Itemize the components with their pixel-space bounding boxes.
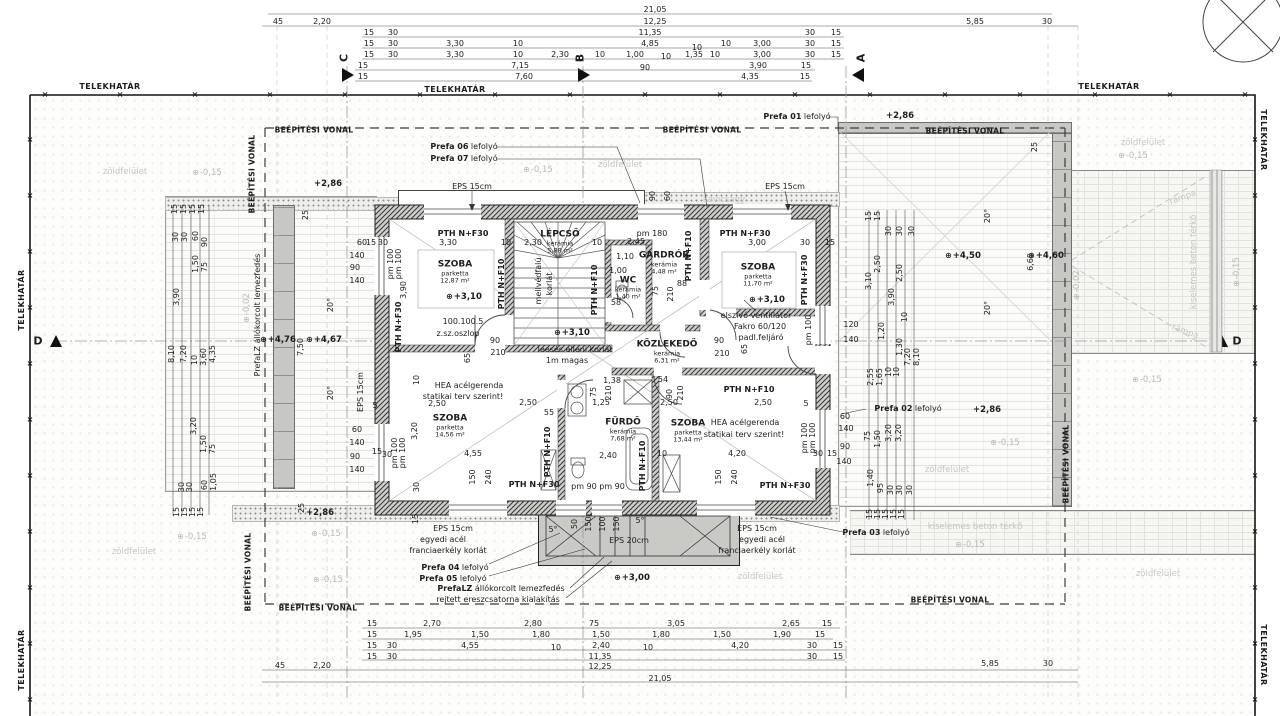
dim-label: 15: [372, 448, 382, 456]
level-mark: ⊕-0,15: [1118, 152, 1148, 161]
dim-label: 90: [201, 237, 209, 247]
dim-label: 30: [186, 482, 194, 492]
level-symbol-icon: ⊕: [749, 295, 756, 304]
dim-label: 3,00: [753, 40, 771, 48]
annotation: Prefa 02 lefolyó: [874, 405, 941, 413]
dim-label: 30: [1042, 18, 1052, 26]
dim-label: 3,90: [400, 281, 408, 299]
boundary-label: TELEKHATÁR: [18, 629, 26, 690]
level-mark: ⊕-0,15: [1233, 257, 1242, 287]
dim-label: 1,20: [878, 322, 886, 340]
dim-label: 10: [657, 450, 667, 458]
dim-label: 3,30: [446, 51, 464, 59]
level-symbol-icon: ⊕: [554, 328, 561, 337]
boundary-mark: ×: [1252, 304, 1259, 312]
section-letter: D: [1232, 336, 1241, 347]
level-mark: +2,86: [314, 180, 342, 189]
dim-label: 20°: [327, 298, 335, 312]
dim-label: 15: [366, 239, 376, 247]
boundary-mark: ×: [27, 360, 34, 368]
dim-label: 2,70: [423, 620, 441, 628]
level-mark: ⊕-0,15: [313, 576, 343, 585]
level-mark: +2,86: [886, 112, 914, 121]
dim-label: 3,90: [888, 288, 896, 306]
dim-label: 75: [590, 387, 598, 397]
dim-label: 30: [1043, 660, 1053, 668]
dim-label: 30: [413, 482, 421, 492]
boundary-mark: ×: [117, 91, 124, 99]
dim-label: 15: [827, 450, 837, 458]
labels-layer: TELEKHATÁRTELEKHATÁRTELEKHATÁRTELEKHATÁR…: [0, 0, 1280, 716]
dim-label: 10: [592, 239, 602, 247]
annotation: egyedi acél: [739, 536, 785, 544]
dim-label: 75: [652, 286, 660, 296]
annotation: egyedi acél: [420, 536, 466, 544]
dim-label: 11,35: [589, 653, 612, 661]
dim-label: 10: [191, 355, 199, 365]
dim-label: 30: [181, 232, 189, 242]
level-mark: ⊕+4,60: [1028, 252, 1064, 261]
dim-label: 30: [906, 485, 914, 495]
dim-label: 2,50: [519, 399, 537, 407]
dim-label: pm 90 pm 90: [571, 483, 625, 491]
level-mark: ⊕-0,15: [1132, 376, 1162, 385]
dim-label: 7,20: [180, 345, 188, 363]
dim-label: 15: [898, 509, 906, 519]
dim-label: 2,30: [524, 239, 542, 247]
dim-label: 4,35: [741, 73, 759, 81]
dim-label: 5°: [635, 517, 644, 525]
dim-label: 2,50: [896, 264, 904, 282]
boundary-mark: ×: [1252, 696, 1259, 704]
dim-label: 10: [513, 40, 523, 48]
dim-label: 15: [833, 653, 843, 661]
room-label: SZOBAparketta13,44 m²: [671, 420, 705, 443]
dim-label: 60: [201, 480, 209, 490]
level-symbol-icon: ⊕: [1118, 151, 1125, 160]
dim-label: 2,50: [874, 255, 882, 273]
dim-label: 12,25: [644, 18, 667, 26]
dim-label: 15: [367, 631, 377, 639]
dim-label: 2,30: [551, 51, 569, 59]
annotation: Prefa 05 lefolyó: [419, 575, 486, 583]
dim-label: 1,50: [200, 435, 208, 453]
wall-type-label: PTH N+F30: [760, 482, 811, 490]
dim-label: 1,05: [210, 473, 218, 491]
level-mark: ⊕-0,15: [311, 530, 341, 539]
boundary-label: TELEKHATÁR: [79, 83, 140, 91]
dim-label: 10: [501, 239, 511, 247]
area-label: zöldfelület: [1136, 570, 1180, 579]
dim-label: 65: [741, 344, 749, 354]
dim-label: 30: [178, 482, 186, 492]
boundary-mark: ×: [1017, 91, 1024, 99]
level-mark: ⊕-0,15: [955, 541, 985, 550]
dim-label: 30: [885, 226, 893, 236]
annotation: EPS 15cm: [452, 183, 492, 191]
floor-plan-canvas: TELEKHATÁRTELEKHATÁRTELEKHATÁRTELEKHATÁR…: [0, 0, 1280, 716]
room-label: SZOBAparketta11,70 m²: [741, 264, 775, 287]
dim-label: 1,35: [685, 51, 703, 59]
annotation: Prefa 01 lefolyó: [763, 113, 830, 121]
annotation: leesés elleni korlát: [538, 346, 613, 354]
boundary-mark: ×: [27, 528, 34, 536]
dim-label: 1,50: [592, 631, 610, 639]
section-letter: C: [339, 54, 350, 62]
area-label: rámpa: [1169, 189, 1198, 206]
dim-label: 90: [666, 389, 674, 399]
dim-label: 45: [273, 18, 283, 26]
dim-label: 15: [358, 62, 368, 70]
annotation: franciaerkély korlát: [409, 547, 486, 555]
dim-label: 10: [595, 51, 605, 59]
level-symbol-icon: ⊕: [177, 532, 184, 541]
dim-label: 15: [874, 211, 882, 221]
dim-label: 75: [201, 262, 209, 272]
dim-label: 30: [887, 485, 895, 495]
boundary-label: TELEKHATÁR: [1078, 83, 1139, 91]
dim-label: 15: [358, 73, 368, 81]
dim-label: 3,20: [885, 424, 893, 442]
dim-label: 140: [349, 439, 364, 447]
dim-label: 20°: [327, 386, 335, 400]
area-label: zöldfelület: [103, 168, 147, 177]
level-symbol-icon: ⊕: [955, 540, 962, 549]
area-label: kiselemes beton térkő: [928, 523, 1023, 532]
dim-label: 2,40: [599, 452, 617, 460]
dim-label: 90: [350, 264, 360, 272]
boundary-mark: ×: [1242, 91, 1249, 99]
dim-label: 75: [209, 444, 217, 454]
dim-label: 21,05: [644, 6, 667, 14]
annotation: HEA acélgerenda: [435, 382, 504, 390]
level-symbol-icon: ⊕: [1072, 293, 1081, 300]
boundary-mark: ×: [792, 91, 799, 99]
dim-label: 15: [171, 204, 179, 214]
dim-label: 240: [731, 469, 739, 484]
dim-label: 90: [490, 337, 500, 345]
wall-type-label: PTH N+F30: [801, 255, 809, 306]
boundary-mark: ×: [1252, 136, 1259, 144]
dim-label: 5°: [548, 526, 557, 534]
dim-label: 15: [822, 620, 832, 628]
dim-label: 150: [715, 469, 723, 484]
dim-label: 2,80: [524, 620, 542, 628]
annotation: statikai terv szerint!: [704, 431, 785, 439]
section-letter: A: [856, 54, 867, 63]
boundary-mark: ×: [1252, 360, 1259, 368]
dim-label: 15: [367, 642, 377, 650]
dim-label: 60: [840, 413, 850, 421]
annotation: EPS 15cm: [433, 525, 473, 533]
dim-label: 3,00: [753, 51, 771, 59]
building-line-label: BEÉPÍTÉSI VONAL: [911, 596, 990, 604]
dim-label: 30: [805, 51, 815, 59]
dim-label: 3,05: [667, 620, 685, 628]
dim-label: 120: [843, 321, 858, 329]
dim-label: 210: [714, 350, 729, 358]
area-label: kiselemes beton térkő: [1190, 215, 1199, 310]
building-line-label: BEÉPÍTÉSI VONAL: [1062, 425, 1070, 504]
dim-label: 15: [197, 507, 205, 517]
level-symbol-icon: ⊕: [306, 335, 313, 344]
annotation: Fakro 60/120: [734, 323, 786, 331]
area-label: zöldfelület: [598, 161, 642, 170]
boundary-mark: ×: [1252, 192, 1259, 200]
dim-label: 140: [349, 277, 364, 285]
dim-label: 3,10: [865, 272, 873, 290]
dim-label: 60: [352, 426, 362, 434]
dim-label: 3,20: [895, 424, 903, 442]
dim-label: 58: [611, 299, 621, 307]
dim-label: 7,60: [515, 73, 533, 81]
annotation: 1m magas: [546, 357, 588, 365]
boundary-label: TELEKHATÁR: [1259, 109, 1267, 170]
dim-label: 10: [413, 375, 421, 385]
section-letter: D: [33, 336, 42, 347]
annotation: PrefaLZ állókorcolt lemezfedés: [254, 254, 262, 377]
level-mark: ⊕-0,02: [243, 293, 252, 323]
dim-label: 15: [367, 620, 377, 628]
boundary-mark: ×: [1252, 584, 1259, 592]
dim-label: 10: [893, 367, 901, 377]
dim-label: 11,35: [639, 29, 662, 37]
level-mark: ⊕-0,15: [192, 169, 222, 178]
dim-label: 1,95: [404, 631, 422, 639]
dim-label: 15: [815, 631, 825, 639]
level-mark: ⊕+3,10: [554, 329, 590, 338]
boundary-label: TELEKHATÁR: [1259, 624, 1267, 685]
boundary-mark: ×: [27, 416, 34, 424]
boundary-mark: ×: [27, 696, 34, 704]
annotation: statikai terv szerint!: [423, 393, 504, 401]
boundary-mark: ×: [27, 304, 34, 312]
annotation: Prefa 03 lefolyó: [842, 529, 909, 537]
room-label: LÉPCSŐkerámia5,88 m²: [540, 231, 579, 254]
dim-label: pm 100: [805, 315, 813, 346]
level-mark: ⊕-0,15: [990, 439, 1020, 448]
wall-type-label: PTH N+F10: [639, 441, 647, 492]
dim-label: 30: [807, 642, 817, 650]
dim-label: 8,10: [168, 345, 176, 363]
dim-label: pm 100: [809, 423, 817, 454]
boundary-mark: ×: [1252, 248, 1259, 256]
dim-label: 5: [372, 402, 377, 410]
annotation: Prefa 07 lefolyó: [430, 155, 497, 163]
level-symbol-icon: ⊕: [945, 251, 952, 260]
dim-label: 15: [367, 653, 377, 661]
dim-label: 1,80: [652, 631, 670, 639]
dim-label: 30: [896, 485, 904, 495]
boundary-mark: ×: [27, 248, 34, 256]
dim-label: 30: [388, 29, 398, 37]
dim-label: 90: [350, 453, 360, 461]
dim-label: 12,25: [589, 663, 612, 671]
dim-label: 25: [302, 210, 310, 220]
dim-label: 90: [840, 443, 850, 451]
dim-label: 90: [640, 64, 650, 72]
level-symbol-icon: ⊕: [311, 529, 318, 538]
level-symbol-icon: ⊕: [242, 316, 251, 323]
dim-label: 15: [833, 642, 843, 650]
boundary-mark: ×: [27, 192, 34, 200]
dim-label: 21,05: [649, 675, 672, 683]
dim-label: 15: [801, 62, 811, 70]
dim-label: 3,20: [190, 417, 198, 435]
dim-label: 15: [831, 29, 841, 37]
room-label: GARDRÓBkerámia4,48 m²: [639, 252, 689, 275]
level-symbol-icon: ⊕: [990, 438, 997, 447]
dim-label: 1,40: [867, 469, 875, 487]
dim-label: 2,50: [754, 399, 772, 407]
dim-label: 1,90: [773, 631, 791, 639]
area-label: zöldfelület: [1121, 139, 1165, 148]
dim-label: 45: [275, 662, 285, 670]
boundary-mark: ×: [867, 91, 874, 99]
dim-label: 15: [364, 29, 374, 37]
boundary-mark: ×: [1252, 472, 1259, 480]
level-mark: +2,86: [973, 406, 1001, 415]
dim-label: 140: [349, 466, 364, 474]
boundary-mark: ×: [1252, 528, 1259, 536]
dim-label: 1,50: [713, 631, 731, 639]
dim-label: 50: [571, 519, 579, 529]
dim-label: 15: [412, 514, 420, 524]
level-mark: ⊕+3,00: [614, 574, 650, 583]
dim-label: 90: [714, 337, 724, 345]
area-label: zöldfelület: [112, 548, 156, 557]
dim-label: 240: [485, 469, 493, 484]
level-mark: ⊕+4,50: [945, 252, 981, 261]
dim-label: 30: [805, 40, 815, 48]
dim-label: 210: [667, 286, 675, 301]
dim-label: 5: [803, 400, 808, 408]
dim-label: 1,50: [874, 430, 882, 448]
boundary-label: TELEKHATÁR: [18, 269, 26, 330]
annotation: PrefaLZ állókorcolt lemezfedés: [437, 585, 564, 593]
boundary-mark: ×: [942, 91, 949, 99]
level-symbol-icon: ⊕: [446, 292, 453, 301]
dim-label: 54: [658, 376, 668, 384]
annotation: EPS 20cm: [609, 537, 649, 545]
boundary-mark: ×: [417, 91, 424, 99]
dim-label: 15: [825, 239, 835, 247]
dim-label: 3,30: [439, 239, 457, 247]
dim-label: 210: [605, 385, 613, 400]
dim-label: 1,50: [192, 255, 200, 273]
dim-label: 210: [677, 385, 685, 400]
dim-label: 30: [172, 232, 180, 242]
annotation: rejtett ereszcsatorna kialakítás: [436, 596, 560, 604]
dim-label: 60: [192, 231, 200, 241]
dim-label: 4,55: [464, 450, 482, 458]
room-label: KÖZLEKEDŐkerámia6,31 m²: [637, 341, 698, 364]
dim-label: 140: [349, 252, 364, 260]
wall-type-label: PTH N+F10: [544, 427, 552, 478]
dim-label: 100: [599, 516, 607, 531]
dim-label: 30: [388, 40, 398, 48]
dim-label: 210: [490, 349, 505, 357]
dim-label: 2,55: [867, 368, 875, 386]
dim-label: 10: [661, 53, 671, 61]
annotation: EPS 15cm: [765, 183, 805, 191]
wall-type-label: PTH N+F30: [509, 481, 560, 489]
building-line-label: BEÉPÍTÉSI VONAL: [244, 533, 252, 612]
dim-label: 20°: [984, 301, 992, 315]
dim-label: 20°: [984, 209, 992, 223]
dim-label: 7,20: [904, 348, 912, 366]
level-mark: ⊕-0,02: [1073, 270, 1082, 300]
dim-label: 4,85: [641, 40, 659, 48]
level-symbol-icon: ⊕: [614, 573, 621, 582]
wall-type-label: PTH N+F10: [724, 386, 775, 394]
dim-label: 30: [800, 239, 810, 247]
boundary-mark: ×: [192, 91, 199, 99]
dim-label: 2,50: [428, 400, 446, 408]
dim-label: 15: [800, 73, 810, 81]
dim-label: 15: [189, 204, 197, 214]
boundary-mark: ×: [27, 472, 34, 480]
dim-label: 10: [710, 51, 720, 59]
dim-label: 15: [831, 51, 841, 59]
level-symbol-icon: ⊕: [1232, 280, 1241, 287]
boundary-mark: ×: [717, 91, 724, 99]
dim-label: 2,20: [313, 662, 331, 670]
dim-label: 150: [585, 516, 593, 531]
dim-label: 1,38: [603, 377, 621, 385]
level-mark: ⊕+4,76: [260, 336, 296, 345]
area-label: rámpa: [1171, 323, 1200, 340]
dim-label: 25: [298, 503, 306, 513]
dim-label: 15: [865, 211, 873, 221]
dim-label: 90: [649, 191, 657, 201]
dim-label: pm 100: [399, 438, 407, 469]
level-mark: +2,86: [306, 509, 334, 518]
dim-label: 3,60: [200, 348, 208, 366]
boundary-mark: ×: [567, 91, 574, 99]
dim-label: 95: [877, 483, 885, 493]
dim-label: 150: [469, 469, 477, 484]
level-mark: ⊕-0,15: [177, 533, 207, 542]
dim-label: 30: [896, 226, 904, 236]
annotation: padl.feljáró: [739, 334, 784, 342]
level-mark: ⊕+3,10: [749, 296, 785, 305]
boundary-mark: ×: [267, 91, 274, 99]
annotation: EPS 15cm: [357, 372, 365, 412]
annotation: elszívó ventillátor: [721, 312, 792, 320]
dim-label: 1,10: [616, 253, 634, 261]
level-mark: ⊕-0,15: [523, 166, 553, 175]
wall-type-label: PTH N+F30: [438, 230, 489, 238]
dim-label: 10: [643, 644, 653, 652]
level-symbol-icon: ⊕: [313, 575, 320, 584]
building-line-label: BEÉPÍTÉSI VONAL: [663, 126, 742, 134]
boundary-mark: ×: [42, 91, 49, 99]
dim-label: 1,00: [626, 51, 644, 59]
building-line-label: BEÉPÍTÉSI VONAL: [275, 126, 354, 134]
annotation: Prefa 06 lefolyó: [430, 143, 497, 151]
dim-label: 1,80: [532, 631, 550, 639]
wall-type-label: PTH N+F10: [498, 259, 506, 310]
wall-type-label: PTH N+F30: [395, 302, 403, 353]
dim-label: 5,85: [966, 18, 984, 26]
room-label: SZOBAparketta14,56 m²: [433, 415, 467, 438]
dim-label: 2,20: [313, 18, 331, 26]
dim-label: 1,00: [609, 267, 627, 275]
dim-label: 15: [364, 40, 374, 48]
dim-label: 7,50: [297, 338, 305, 356]
annotation: franciaerkély korlát: [718, 547, 795, 555]
